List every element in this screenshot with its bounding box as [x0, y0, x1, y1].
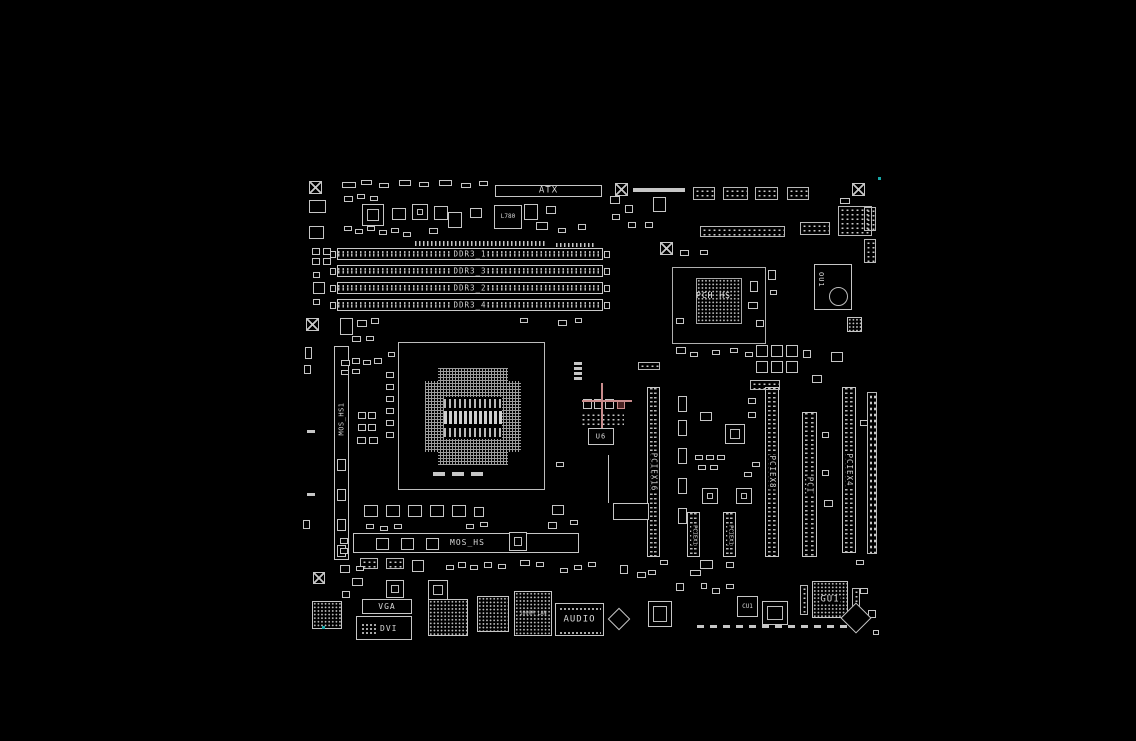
passive-component: [748, 302, 758, 309]
passive-component: [352, 369, 360, 374]
passive-component: [710, 465, 718, 470]
passive-component: [386, 384, 394, 390]
passive-component: [700, 250, 708, 255]
passive-component: [419, 182, 429, 187]
chip-ou1-label: OU1: [817, 271, 824, 289]
slot-pciex16-label: PCIEX16: [650, 452, 658, 493]
passive-component: [458, 562, 466, 568]
solder-pad: [433, 472, 445, 476]
slot-pciex1-a[interactable]: PCIEX1: [687, 512, 700, 557]
bga-chip: [312, 601, 342, 629]
passive-component: [366, 336, 374, 341]
passive-component: [330, 268, 336, 275]
passive-component: [604, 302, 610, 309]
passive-component: [604, 268, 610, 275]
passive-component: [330, 302, 336, 309]
passive-component: [479, 181, 488, 186]
chip-cu1[interactable]: CU1: [737, 596, 758, 617]
passive-component: [303, 520, 310, 529]
passive-component: [575, 318, 582, 323]
passive-component: [470, 208, 482, 218]
passive-component: [386, 372, 394, 378]
chip-ou1[interactable]: OU1: [814, 264, 852, 310]
passive-component: [358, 424, 366, 431]
passive-component: [368, 424, 376, 431]
atx-label: ATX: [538, 187, 559, 196]
mounting-hole: [306, 318, 319, 331]
passive-component: [403, 232, 411, 237]
passive-component: [676, 583, 684, 591]
passive-component: [744, 472, 752, 477]
passive-component: [690, 352, 698, 357]
cpu-socket[interactable]: [398, 342, 545, 490]
passive-component: [352, 358, 360, 364]
passive-component: [352, 578, 363, 586]
passive-component: [824, 500, 833, 507]
passive-component: [588, 562, 596, 567]
pin-header[interactable]: [755, 187, 778, 200]
passive-component: [678, 420, 687, 436]
ddr3-slot-1-label: DDR3_1: [452, 250, 487, 258]
passive-component: [676, 347, 686, 354]
passive-component: [812, 375, 822, 383]
passive-component: [612, 214, 620, 220]
pch-bga: [696, 278, 742, 324]
passive-component: [357, 320, 367, 327]
passive-component: [750, 281, 758, 292]
passive-component: [536, 562, 544, 567]
chip-l780-label: L780: [500, 214, 516, 220]
passive-component: [340, 318, 353, 335]
ic-chip: [736, 488, 752, 504]
solder-pad: [452, 472, 464, 476]
pad-array: [800, 222, 830, 235]
passive-component: [620, 565, 628, 574]
slot-pciex8-label: PCIEX8: [768, 454, 776, 489]
ic-chip: [509, 532, 527, 551]
passive-component: [394, 524, 402, 529]
passive-component: [386, 396, 394, 402]
vga-connector[interactable]: VGA: [362, 599, 412, 614]
ic-chip: [702, 488, 718, 504]
mosfet: [337, 459, 346, 471]
inductor-coil: [829, 287, 848, 306]
dvi-pins: [360, 622, 376, 636]
ic-chip: [725, 424, 745, 444]
passive-component: [680, 250, 689, 256]
passive-component: [374, 358, 382, 364]
solder-pad: [307, 430, 315, 433]
passive-component: [536, 222, 548, 230]
passive-component: [786, 361, 798, 373]
passive-component: [357, 194, 365, 199]
bga-chip: [847, 317, 862, 332]
passive-component: [340, 538, 348, 544]
mosfet: [401, 538, 414, 550]
passive-component: [430, 505, 444, 517]
passive-component: [364, 505, 378, 517]
passive-component: [678, 478, 687, 494]
marker-dot: [878, 177, 881, 180]
passive-component: [330, 285, 336, 292]
passive-component: [429, 228, 438, 234]
bga-chip: [428, 599, 468, 636]
passive-component: [604, 251, 610, 258]
slot-pciex1-b-label: PCIEX1: [727, 524, 733, 546]
passive-component: [309, 200, 326, 213]
ic-chip: [386, 580, 404, 598]
passive-component: [558, 228, 566, 233]
passive-component: [341, 360, 350, 366]
passive-component: [379, 230, 387, 235]
atx-connector[interactable]: ATX: [495, 185, 602, 197]
boardview-canvas: ATX L780 DDR3_1 DDR3_3 DDR3_2 DDR3_4 MOS…: [0, 0, 1136, 741]
socket-notch: [425, 452, 438, 465]
passive-component: [570, 520, 578, 525]
passive-component: [701, 583, 707, 589]
passive-component: [412, 560, 424, 572]
pad-array: [800, 585, 808, 615]
passive-component: [313, 272, 320, 278]
vrm-heatsink-left[interactable]: MOS_HS1: [334, 346, 349, 560]
solder-pad: [574, 377, 582, 380]
passive-component: [344, 196, 353, 202]
passive-component: [352, 336, 361, 342]
passive-component: [726, 584, 734, 589]
passive-component: [771, 345, 783, 357]
mosfet: [376, 538, 389, 550]
passive-component: [803, 350, 811, 358]
edge-connector[interactable]: [867, 392, 877, 554]
mounting-hole: [313, 572, 325, 584]
passive-component: [748, 412, 756, 418]
passive-component: [625, 205, 633, 213]
vrm-heatsink-left-label: MOS_HS1: [337, 403, 346, 436]
passive-component: [637, 572, 646, 578]
passive-component: [380, 526, 388, 531]
passive-component: [786, 345, 798, 357]
passive-component: [628, 222, 636, 228]
passive-component: [452, 505, 466, 517]
lan-chip-label: 1000M LAN: [518, 611, 547, 616]
passive-component: [434, 206, 448, 220]
audio-pins-bottom: [558, 630, 601, 635]
ic-chip: [362, 204, 384, 226]
passive-component: [645, 222, 653, 228]
passive-component: [700, 412, 712, 421]
passive-component: [363, 360, 371, 365]
passive-component: [756, 345, 768, 357]
slot-pci[interactable]: PCI: [802, 412, 817, 557]
passive-component: [574, 565, 582, 570]
passive-component: [660, 560, 668, 565]
socket-notch: [508, 368, 521, 381]
passive-component: [653, 197, 666, 212]
passive-component: [341, 370, 349, 375]
passive-component: [439, 180, 452, 186]
passive-component: [676, 318, 684, 324]
passive-component: [712, 588, 720, 594]
passive-component: [356, 566, 364, 571]
ic-chip: [613, 503, 649, 520]
lan-chip[interactable]: 1000M LAN: [514, 591, 552, 636]
pad-array: [750, 380, 780, 390]
pch-label: PCH HS: [695, 292, 732, 300]
passive-component: [342, 182, 356, 188]
passive-component: [712, 350, 720, 355]
ddr3-slot-2[interactable]: DDR3_2: [337, 282, 603, 294]
chip-gu1-label: GU1: [819, 595, 840, 604]
passive-component: [856, 560, 864, 565]
passive-component: [552, 505, 564, 515]
passive-component: [520, 560, 530, 566]
ic-chip: [648, 601, 672, 627]
passive-component: [706, 455, 714, 460]
ddr3-slot-4-label: DDR3_4: [452, 301, 487, 309]
passive-component: [678, 396, 687, 412]
ddr3-slot-4[interactable]: DDR3_4: [337, 299, 603, 311]
passive-component: [860, 420, 868, 426]
passive-component: [379, 183, 389, 188]
ddr3-slot-3-label: DDR3_3: [452, 267, 487, 275]
passive-component: [690, 570, 701, 576]
pad-array: [700, 226, 785, 237]
slot-pciex4-label: PCIEX4: [845, 452, 853, 487]
passive-component: [466, 524, 474, 529]
pad-array: [838, 206, 872, 236]
passive-component: [678, 508, 687, 524]
passive-component: [448, 212, 462, 228]
passive-component: [548, 522, 557, 529]
pin-row: [415, 241, 545, 246]
passive-component: [370, 196, 378, 201]
mosfet: [426, 538, 439, 550]
passive-component: [366, 524, 374, 529]
audio-connector[interactable]: AUDIO: [555, 603, 604, 636]
passive-component: [768, 270, 776, 280]
passive-component: [344, 226, 352, 231]
slot-pci-label: PCI: [806, 475, 814, 494]
slot-pciex1-a-label: PCIEX1: [691, 524, 697, 546]
ddr3-slot-2-label: DDR3_2: [452, 284, 487, 292]
passive-component: [698, 465, 706, 470]
slot-pciex1-b[interactable]: PCIEX1: [723, 512, 736, 557]
vrm-heatsink-bottom-label: MOS_HS: [449, 539, 486, 547]
passive-component: [498, 564, 506, 569]
solder-pad: [471, 472, 483, 476]
passive-component: [371, 318, 379, 324]
passive-component: [484, 562, 492, 568]
solder-pad: [574, 367, 582, 370]
chip-cu1-label: CU1: [741, 604, 754, 610]
mosfet: [337, 489, 346, 501]
bga-chip: [477, 596, 509, 632]
passive-component: [358, 412, 366, 419]
passive-component: [388, 352, 395, 357]
passive-component: [748, 398, 756, 404]
passive-component: [309, 226, 324, 239]
passive-component: [770, 290, 777, 295]
passive-component: [860, 588, 868, 594]
top-edge-connector: [633, 188, 685, 192]
passive-component: [556, 462, 564, 467]
mosfet: [337, 519, 346, 531]
passive-component: [386, 505, 400, 517]
pin-header[interactable]: [693, 187, 715, 200]
passive-component: [480, 522, 488, 527]
audio-pins-top: [558, 606, 601, 611]
selection-crosshair-h: [582, 400, 632, 402]
slot-pciex8[interactable]: PCIEX8: [765, 387, 779, 557]
passive-component: [330, 251, 336, 258]
passive-component: [461, 183, 471, 188]
passive-component: [369, 437, 378, 444]
pad-array: [386, 558, 404, 569]
mounting-hole: [660, 242, 673, 255]
fiducial-diamond: [608, 608, 631, 631]
audio-label: AUDIO: [562, 615, 596, 624]
passive-component: [756, 320, 764, 327]
passive-component: [726, 562, 734, 568]
passive-component: [386, 420, 394, 426]
passive-component: [474, 507, 484, 517]
passive-component: [831, 352, 843, 362]
dvi-label: DVI: [379, 625, 398, 633]
ic-chip: [762, 601, 788, 625]
pad-array: [638, 362, 660, 370]
ic-chip: [428, 580, 448, 600]
dvi-connector[interactable]: DVI: [356, 616, 412, 640]
passive-component: [312, 248, 320, 255]
board-edge-dashed-line: [697, 625, 847, 628]
passive-component: [730, 348, 738, 353]
passive-component: [470, 565, 478, 570]
mounting-hole: [309, 181, 322, 194]
ic-chip: [412, 204, 428, 220]
passive-component: [546, 206, 556, 214]
passive-component: [752, 462, 760, 467]
passive-component: [342, 591, 350, 598]
passive-component: [520, 318, 528, 323]
chip-u6[interactable]: U6: [588, 428, 614, 445]
edge-connector[interactable]: [864, 239, 876, 263]
chip-l780[interactable]: L780: [494, 205, 522, 229]
solder-pad: [574, 362, 582, 365]
passive-component: [313, 282, 325, 294]
ddr3-slot-1[interactable]: DDR3_1: [337, 248, 603, 260]
chip-u6-label: U6: [595, 433, 607, 440]
pin-header[interactable]: [723, 187, 748, 200]
slot-pciex16[interactable]: PCIEX16: [647, 387, 660, 557]
passive-component: [313, 299, 320, 305]
vga-label: VGA: [377, 603, 396, 611]
passive-component: [355, 229, 363, 234]
vrm-heatsink-bottom[interactable]: MOS_HS: [353, 533, 579, 553]
cpu-socket-center: [444, 397, 502, 439]
passive-component: [446, 565, 454, 570]
passive-component: [323, 258, 331, 265]
socket-notch: [508, 452, 521, 465]
passive-component: [873, 630, 879, 635]
mounting-hole: [852, 183, 865, 196]
passive-component: [304, 365, 311, 374]
passive-component: [386, 432, 394, 438]
ddr3-slot-3[interactable]: DDR3_3: [337, 265, 603, 277]
passive-component: [610, 196, 620, 204]
passive-component: [368, 412, 376, 419]
passive-component: [305, 347, 312, 359]
passive-component: [560, 568, 568, 573]
passive-component: [648, 570, 656, 575]
passive-component: [771, 361, 783, 373]
passive-component: [391, 228, 399, 233]
passive-component: [357, 437, 366, 444]
passive-component: [745, 352, 753, 357]
passive-component: [695, 455, 703, 460]
passive-component: [578, 224, 586, 230]
solder-pad: [608, 455, 609, 503]
passive-component: [340, 565, 350, 573]
pin-row: [556, 243, 594, 247]
mounting-hole: [615, 183, 628, 196]
passive-component: [756, 361, 768, 373]
passive-component: [340, 548, 348, 554]
slot-pciex4[interactable]: PCIEX4: [842, 387, 856, 553]
passive-component: [367, 226, 375, 231]
passive-component: [678, 448, 687, 464]
selection-crosshair-v: [601, 383, 603, 428]
passive-component: [408, 505, 422, 517]
passive-component: [558, 320, 567, 326]
passive-component: [717, 455, 725, 460]
passive-component: [524, 204, 538, 220]
passive-component: [392, 208, 406, 220]
passive-component: [399, 180, 411, 186]
socket-notch: [425, 368, 438, 381]
pin-header[interactable]: [787, 187, 809, 200]
chip-gu1[interactable]: GU1: [812, 581, 848, 618]
passive-component: [822, 470, 829, 476]
passive-component: [312, 258, 320, 265]
solder-pad: [574, 372, 582, 375]
solder-pad: [307, 493, 315, 496]
passive-component: [700, 560, 713, 569]
passive-component: [822, 432, 829, 438]
passive-component: [361, 180, 372, 185]
passive-component: [386, 408, 394, 414]
passive-component: [604, 285, 610, 292]
passive-component: [840, 198, 850, 204]
marker-dot: [322, 626, 325, 629]
